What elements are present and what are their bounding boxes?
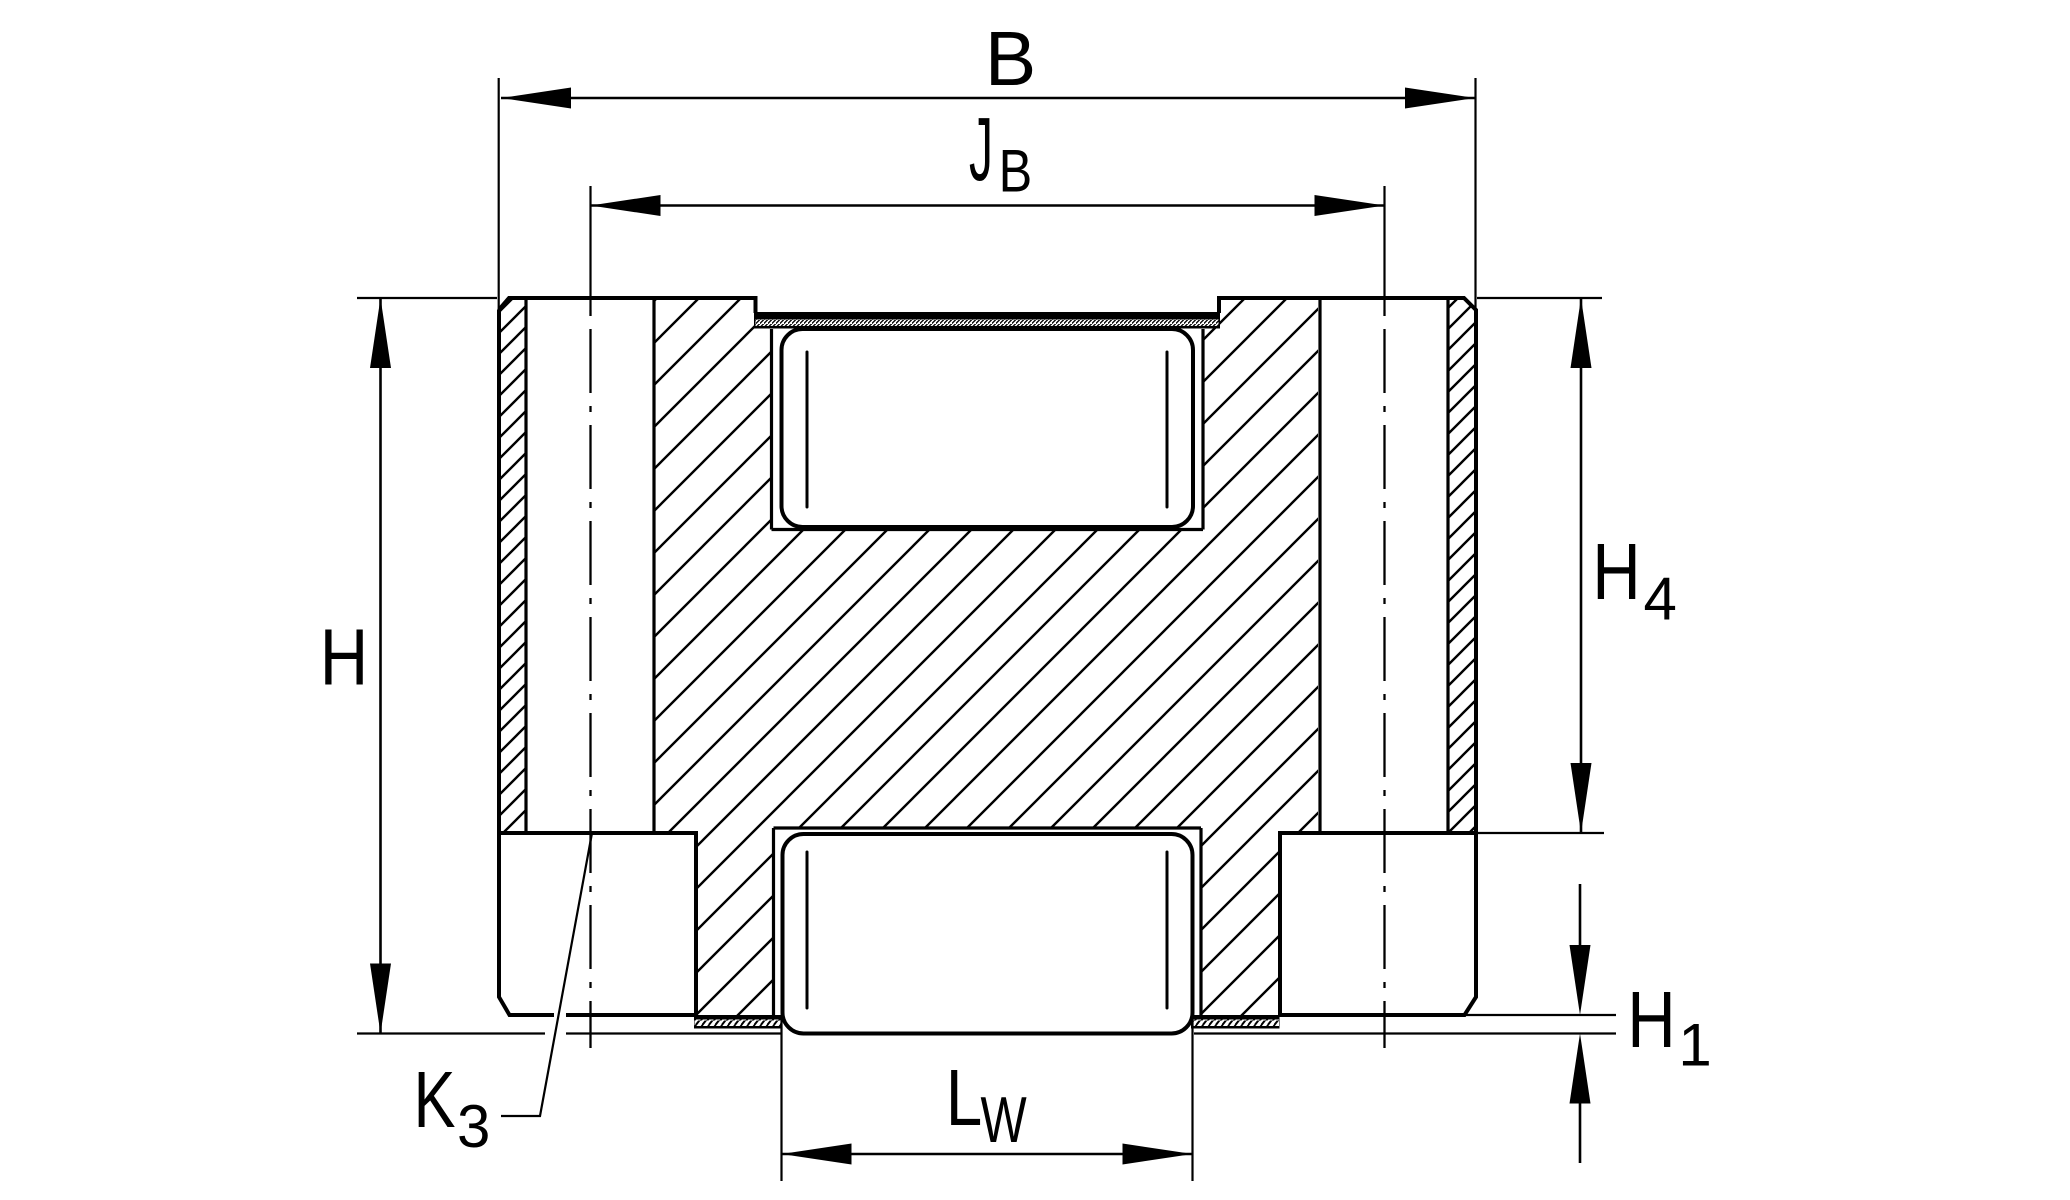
svg-text:W: W [981, 1083, 1028, 1156]
svg-text:H: H [1592, 527, 1641, 616]
svg-text:H: H [320, 613, 369, 702]
svg-text:4: 4 [1644, 566, 1677, 633]
svg-text:B: B [999, 138, 1033, 205]
svg-text:J: J [969, 100, 993, 200]
svg-text:3: 3 [457, 1093, 490, 1160]
svg-text:B: B [985, 16, 1036, 102]
svg-text:K: K [414, 1055, 456, 1144]
svg-text:1: 1 [1678, 1012, 1711, 1079]
svg-text:L: L [946, 1053, 983, 1142]
svg-text:H: H [1627, 975, 1676, 1064]
